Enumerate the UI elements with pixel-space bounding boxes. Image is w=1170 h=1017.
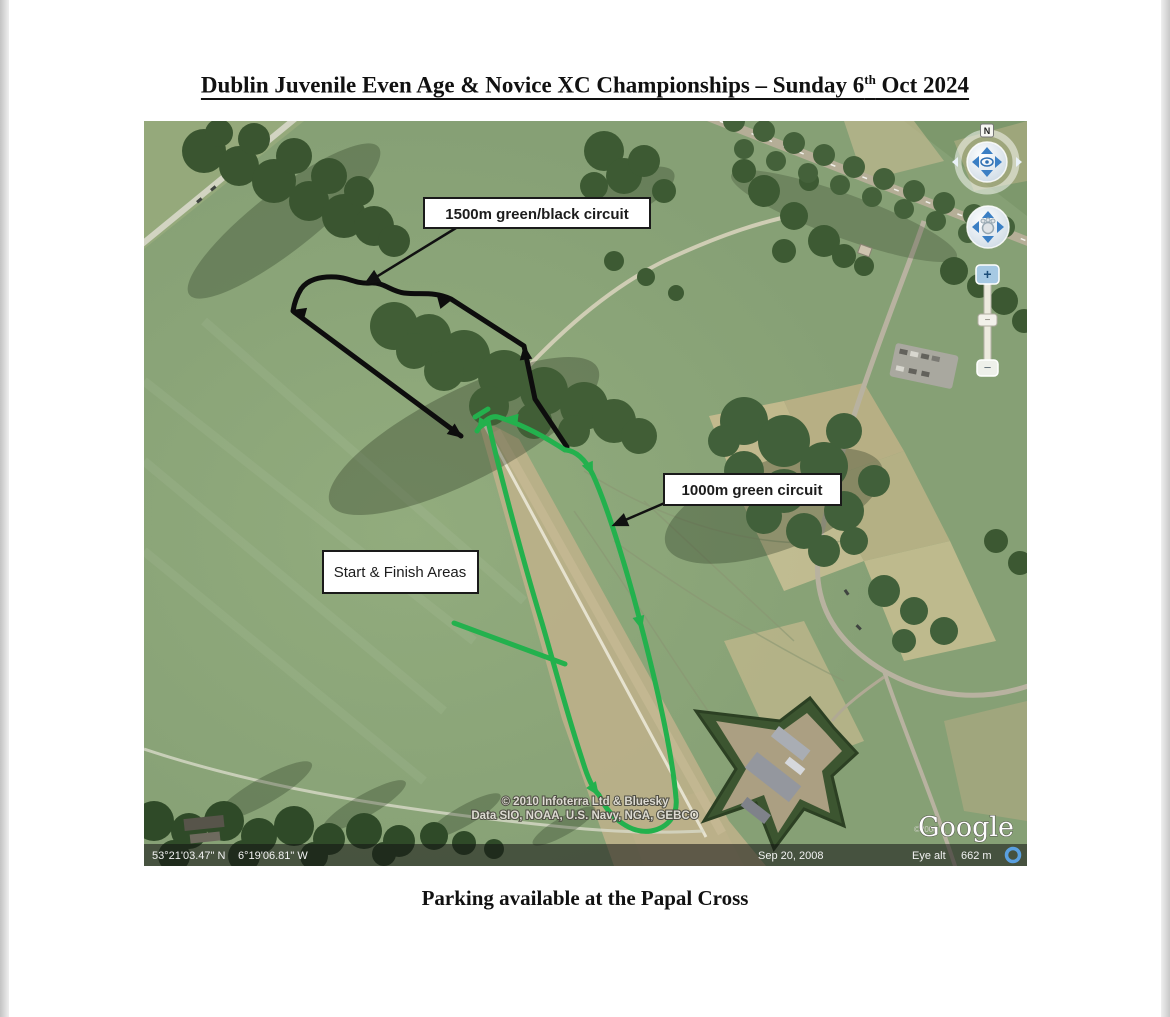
status-latitude: 53°21'03.47" N (152, 850, 225, 862)
move-joystick[interactable] (967, 206, 1009, 248)
window-edge-left (0, 0, 9, 1017)
window-edge-right (1161, 0, 1170, 1017)
north-badge-label: N (984, 126, 991, 136)
title-text: Dublin Juvenile Even Age & Novice XC Cha… (201, 73, 864, 98)
google-logo-text: Google (918, 812, 1014, 843)
zoom-in-label: + (983, 266, 991, 282)
parking-caption: Parking available at the Papal Cross (0, 886, 1170, 911)
status-imagery-date: Sep 20, 2008 (758, 850, 823, 862)
label-start-finish-text: Start & Finish Areas (334, 564, 467, 581)
label-1500m-circuit: 1500m green/black circuit (424, 198, 650, 228)
title-superscript: th (864, 72, 876, 87)
page-title: Dublin Juvenile Even Age & Novice XC Cha… (0, 72, 1170, 99)
hand-icon (981, 218, 995, 234)
status-longitude: 6°19'06.81" W (238, 850, 308, 862)
label-1500m-circuit-text: 1500m green/black circuit (445, 206, 628, 223)
zoom-handle-label: − (985, 315, 991, 326)
label-1000m-circuit: 1000m green circuit (664, 474, 841, 505)
credit-line2: Data SIO, NOAA, U.S. Navy, NGA, GEBCO (471, 810, 698, 822)
status-eye-alt-label: Eye alt (912, 850, 946, 862)
label-1000m-circuit-text: 1000m green circuit (682, 482, 823, 499)
satellite-imagery (144, 121, 1027, 866)
credit-line1: © 2010 Infoterra Ltd & Bluesky (502, 796, 670, 808)
title-suffix: Oct 2024 (876, 73, 969, 98)
status-eye-alt-value: 662 m (961, 850, 992, 862)
google-logo: ©2008 Google (914, 812, 1014, 843)
status-bar: 53°21'03.47" N 6°19'06.81" W Sep 20, 200… (144, 844, 1027, 866)
satellite-map-figure: 1500m green/black circuit 1000m green ci… (144, 121, 1027, 866)
zoom-out-label: − (984, 360, 992, 375)
label-start-finish: Start & Finish Areas (323, 551, 478, 593)
